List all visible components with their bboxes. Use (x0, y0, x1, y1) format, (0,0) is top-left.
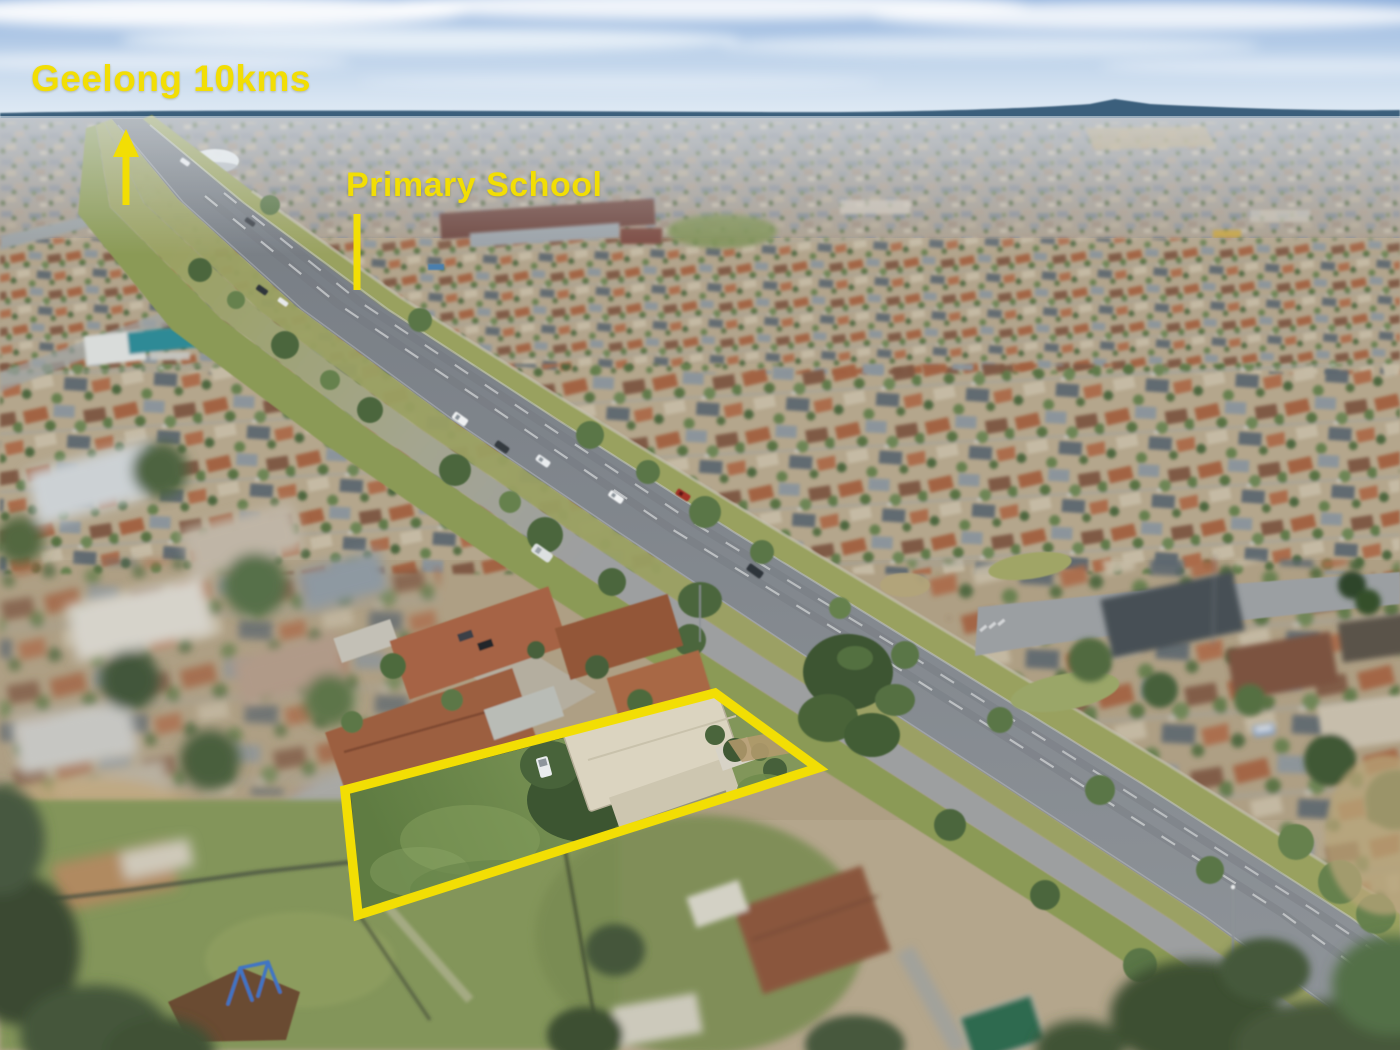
geelong-distance-label: Geelong 10kms (31, 60, 311, 97)
primary-school-label: Primary School (346, 168, 602, 202)
atmospheric-haze (0, 116, 1400, 256)
aerial-photo: Geelong 10kms Primary School (0, 0, 1400, 1050)
scene-svg (0, 0, 1400, 1050)
bottom-neighbour (535, 815, 960, 1050)
